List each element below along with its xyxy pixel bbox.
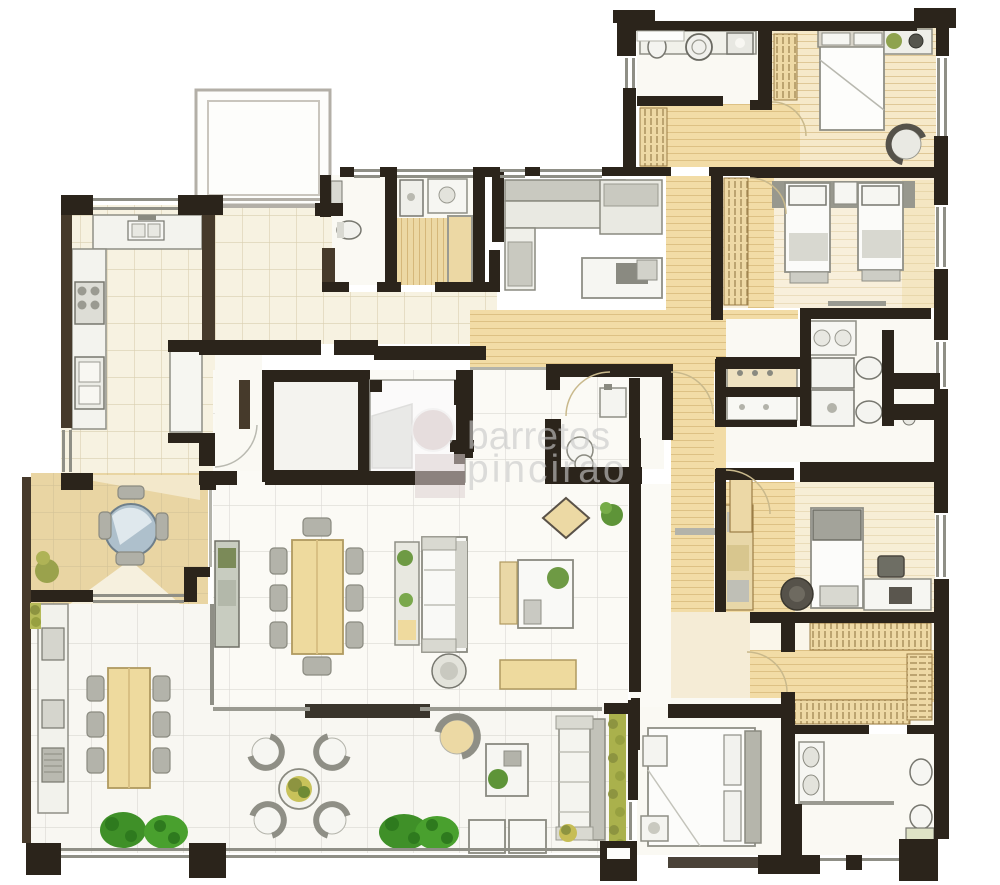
svg-text:pincirao: pincirao	[467, 448, 628, 491]
